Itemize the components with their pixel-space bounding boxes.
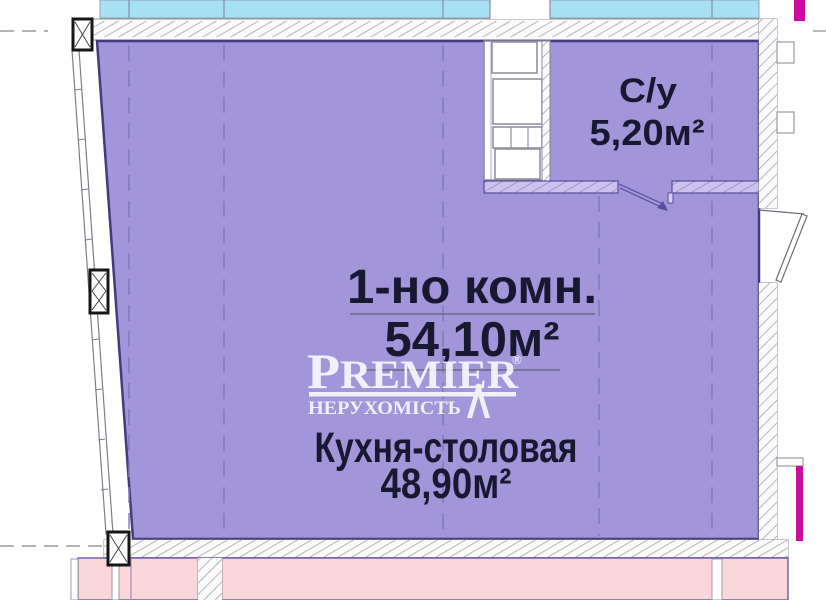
- svg-text:С/у: С/у: [619, 72, 677, 110]
- svg-text:1-но комн.: 1-но комн.: [347, 261, 597, 314]
- svg-text:PREMIER: PREMIER: [307, 343, 519, 399]
- svg-text:®: ®: [512, 352, 522, 367]
- svg-text:НЕРУХОМІСТЬ: НЕРУХОМІСТЬ: [308, 398, 461, 419]
- svg-text:48,90м²: 48,90м²: [381, 460, 512, 508]
- svg-text:5,20м²: 5,20м²: [590, 112, 705, 153]
